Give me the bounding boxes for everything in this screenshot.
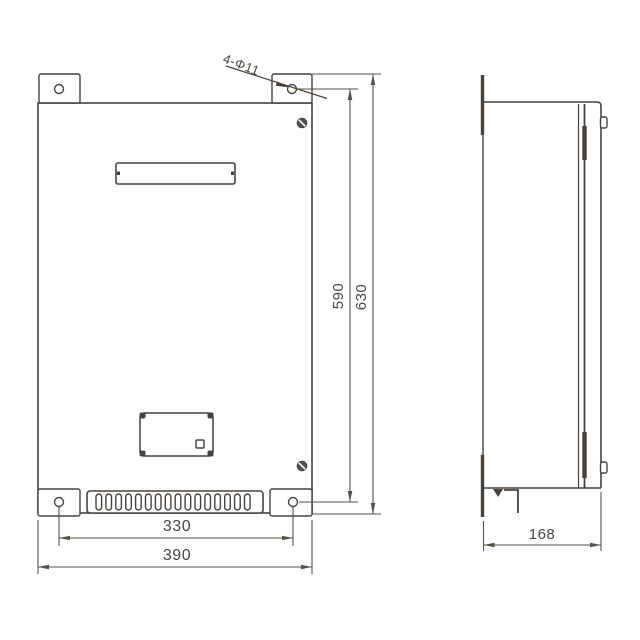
dim-label-390: 390	[163, 547, 191, 564]
hole-callout-label: 4-Φ11	[221, 51, 262, 79]
drawing-svg: 4-Φ11 590 630 330 390	[0, 0, 640, 640]
display-corner-br	[208, 451, 214, 457]
arrow-down-630	[371, 503, 376, 514]
arrow-left-390	[38, 565, 49, 570]
door-screw-top	[297, 118, 307, 128]
dim-label-630: 630	[353, 284, 370, 311]
display-corner-tl	[140, 413, 146, 419]
side-bottom-mark	[493, 489, 503, 497]
display-corner-tr	[208, 413, 214, 419]
arrow-left-330	[59, 536, 70, 541]
arrow-up-630	[371, 74, 376, 85]
side-latch-bottom	[601, 462, 608, 473]
side-bottom-gland	[504, 490, 518, 513]
dim-label-330: 330	[163, 518, 191, 535]
display-corner-bl	[140, 451, 146, 457]
display-window	[140, 413, 213, 456]
arrow-up-590	[348, 89, 353, 100]
slot-notch-right	[231, 172, 234, 176]
side-view	[483, 75, 608, 517]
arrow-right-330	[282, 536, 293, 541]
dim-label-168: 168	[529, 526, 556, 543]
mounting-hole-bottom-left	[55, 498, 64, 507]
door-screw-bottom	[297, 461, 307, 471]
front-view	[38, 74, 312, 516]
slot-notch-left	[117, 172, 120, 176]
mounting-hole-bottom-right	[289, 498, 298, 507]
arrow-left-168	[484, 543, 495, 548]
display-button	[196, 440, 204, 448]
arrow-down-590	[348, 491, 353, 502]
side-latch-top	[601, 117, 608, 128]
arrow-right-168	[590, 543, 601, 548]
arrow-right-390	[301, 565, 312, 570]
technical-drawing: 4-Φ11 590 630 330 390	[0, 0, 640, 640]
mounting-hole-top-left	[55, 85, 64, 94]
top-slot-cutout	[116, 163, 235, 184]
dim-label-590: 590	[330, 283, 347, 310]
